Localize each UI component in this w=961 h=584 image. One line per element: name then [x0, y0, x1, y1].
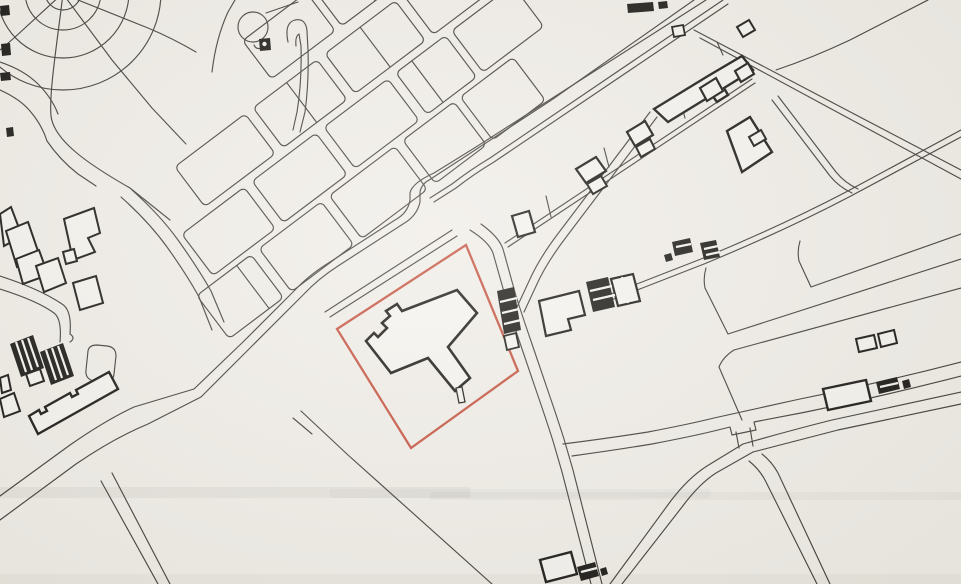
house-i [0, 375, 11, 393]
house-g [73, 276, 103, 310]
right-mid-white-2 [878, 330, 897, 347]
parcel-grid [91, 0, 580, 339]
parcel-divider [346, 0, 375, 1]
parcel-block [329, 146, 427, 238]
br-upper-road-a [563, 362, 961, 444]
parcel-divider [360, 27, 390, 67]
ne-corner-line [776, 0, 928, 70]
parcel-block [197, 255, 284, 339]
edge-mark-2 [1, 43, 11, 56]
parcel-c-edge [734, 288, 961, 350]
factory-small-top [737, 20, 755, 37]
parcel-block [324, 79, 419, 169]
subject-building-annex [456, 387, 465, 403]
factory-chain-base-b [508, 83, 755, 247]
street-lobe-inner [293, 34, 301, 130]
park-ring-inner [45, 0, 81, 10]
edge-mark-1 [0, 5, 10, 16]
parcel-block [259, 202, 354, 292]
road-east-site-a [470, 230, 591, 584]
parcel-block [252, 133, 347, 223]
parcel-block [403, 0, 486, 35]
flag-dot [262, 42, 266, 46]
park-spoke-sw [0, 0, 62, 50]
br-branch-b [762, 454, 830, 584]
parcel-block [182, 187, 276, 275]
br-road-east-b [753, 404, 961, 452]
edge-mark-3 [0, 72, 11, 81]
curved-street-a [0, 276, 73, 342]
tiny-black-1 [664, 253, 673, 262]
house-f [63, 249, 77, 264]
road-bl-nw-edge [0, 389, 194, 496]
factory-building-2 [727, 117, 772, 172]
br-slab-building [823, 380, 871, 410]
scan-artifact-band [430, 492, 961, 500]
br-branch-a [749, 461, 817, 584]
subject-building-t-shape [366, 290, 477, 391]
site-plan-map [0, 0, 961, 584]
park-ring-outer [0, 0, 129, 58]
parcel-c-left [719, 350, 742, 420]
roundabout-circle [238, 12, 268, 42]
outbuilding-white-small [504, 333, 519, 350]
top-edge-bar-2 [658, 1, 668, 9]
chain-block-1 [512, 211, 535, 237]
hatched-pair-2 [700, 240, 720, 260]
top-edge-bar-1 [627, 2, 654, 13]
hatched-block-b [586, 277, 615, 312]
road-east-site-b [481, 224, 602, 584]
small-rect-top [672, 25, 685, 37]
edge-mark-4 [6, 127, 14, 137]
scanned-map-page [0, 0, 961, 584]
parcel-divider [412, 61, 443, 103]
br-tiny-black [902, 379, 911, 389]
crossing-stub [293, 418, 312, 434]
right-mid-white-1 [856, 335, 877, 352]
left-edge-curve-a [0, 62, 58, 114]
parcel-divider [287, 83, 317, 123]
outbuilding-L-shape [539, 291, 585, 336]
hatched-pair-1 [672, 238, 693, 256]
br-road-sw-b [622, 452, 753, 584]
east-track-a [603, 130, 961, 297]
park-roundabout-path [212, 0, 235, 72]
street-lobe-end [287, 20, 308, 132]
park-spoke-east [78, 0, 196, 52]
chain-tick-2 [604, 148, 609, 167]
houses-street-a [132, 190, 224, 322]
park-spoke-se [63, 0, 186, 144]
parcel-a-edge [798, 234, 961, 287]
house-h [0, 393, 20, 417]
east-track-b [606, 137, 961, 302]
